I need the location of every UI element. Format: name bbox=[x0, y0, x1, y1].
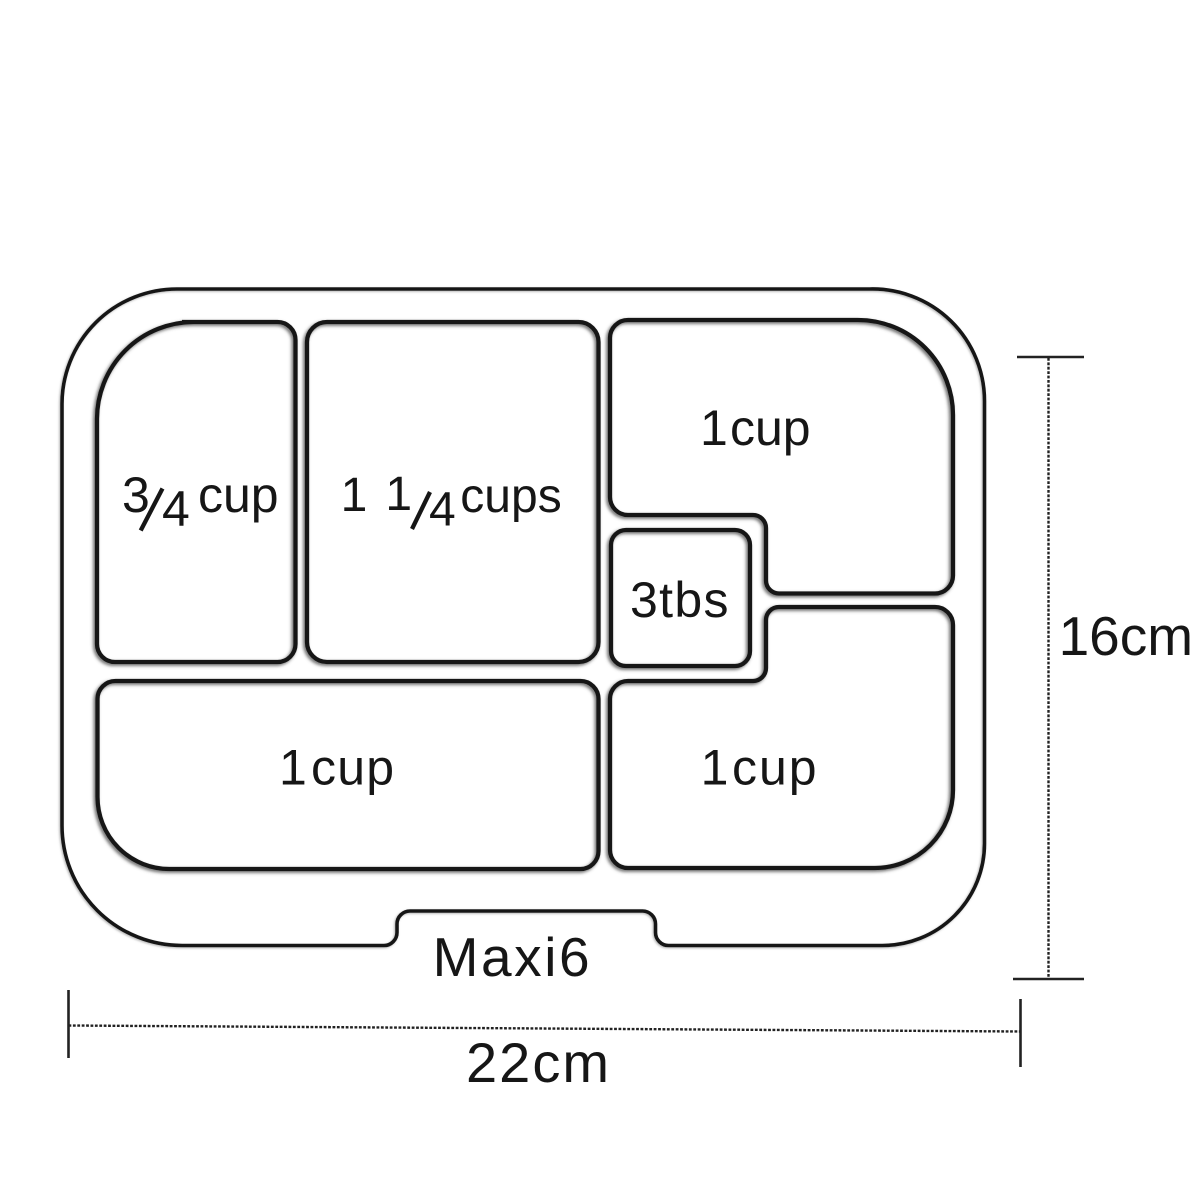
svg-text:cup: cup bbox=[730, 400, 811, 456]
svg-text:cup: cup bbox=[198, 467, 279, 523]
svg-text:16cm: 16cm bbox=[1059, 605, 1194, 667]
svg-text:cup: cup bbox=[311, 740, 394, 796]
svg-text:cups: cups bbox=[460, 470, 561, 523]
svg-text:22cm: 22cm bbox=[466, 1031, 609, 1094]
svg-text:cup: cup bbox=[732, 740, 817, 796]
svg-text:4: 4 bbox=[162, 481, 190, 537]
svg-text:1: 1 bbox=[279, 740, 307, 796]
svg-text:Maxi6: Maxi6 bbox=[433, 926, 590, 988]
svg-text:1: 1 bbox=[385, 468, 412, 521]
svg-text:4: 4 bbox=[429, 484, 456, 537]
svg-text:1: 1 bbox=[701, 740, 729, 796]
svg-text:3: 3 bbox=[122, 467, 150, 523]
svg-text:3tbs: 3tbs bbox=[630, 572, 729, 628]
svg-text:1: 1 bbox=[341, 469, 368, 522]
svg-text:1: 1 bbox=[700, 400, 728, 456]
